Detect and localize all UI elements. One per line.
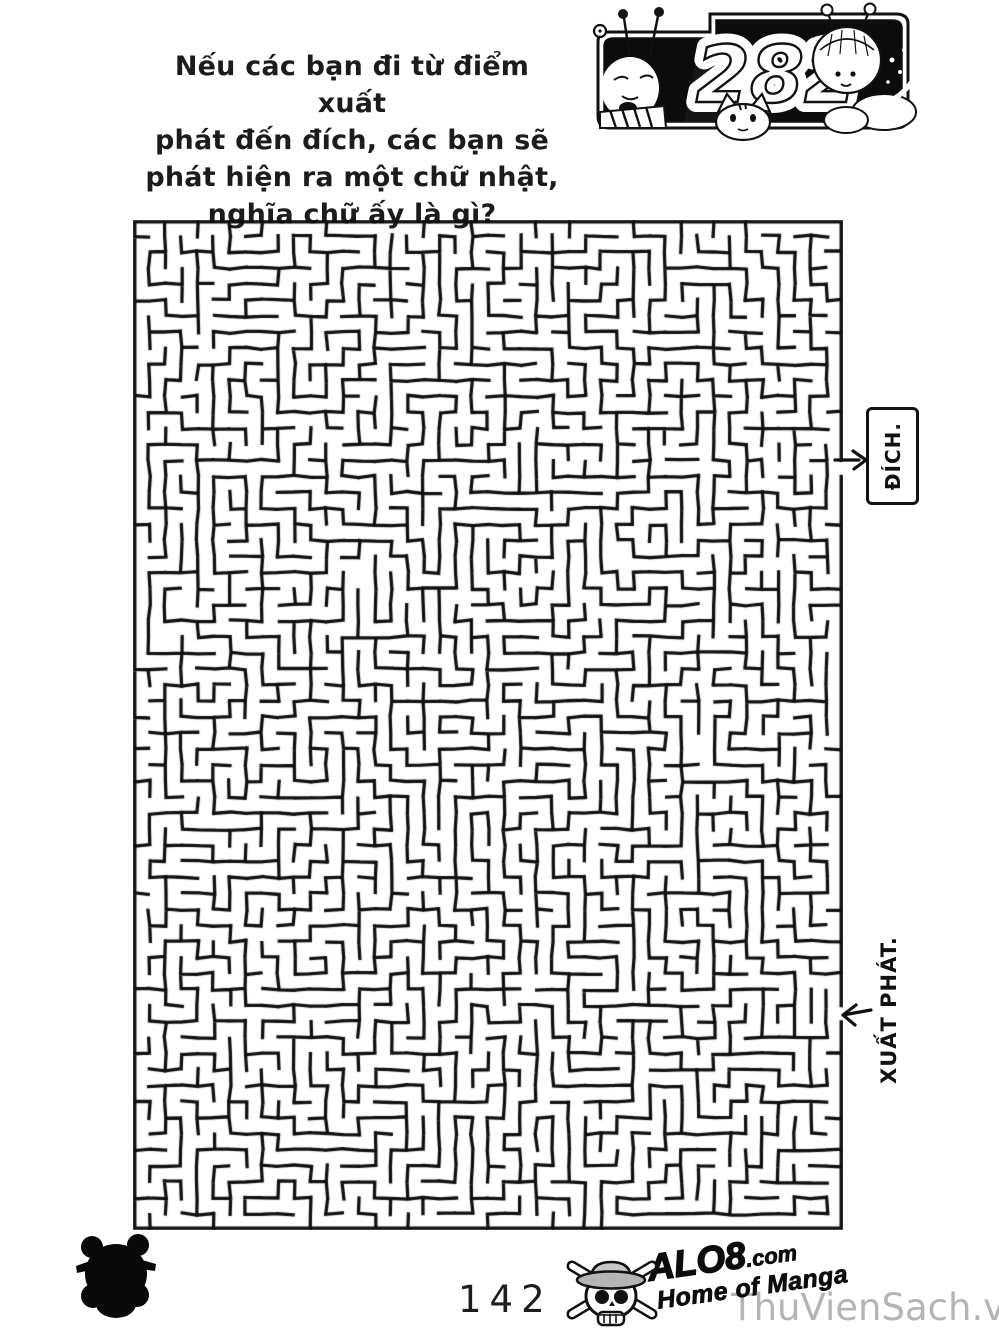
question-line: Nếu các bạn đi từ điểm xuất [140, 48, 564, 122]
maze [133, 220, 843, 1230]
goal-label-box: ĐÍCH. [866, 407, 919, 505]
question-text: Nếu các bạn đi từ điểm xuất phát đến đíc… [140, 48, 564, 233]
strawhat-skull-icon [552, 1248, 670, 1332]
question-line: phát đến đích, các bạn sẽ [140, 122, 564, 159]
chapter-header-panel: 282 282 [592, 0, 937, 142]
question-line: phát hiện ra một chữ nhật, [140, 159, 564, 196]
goal-label: ĐÍCH. [881, 422, 905, 490]
manga-puzzle-page: Nếu các bạn đi từ điểm xuất phát đến đíc… [0, 0, 999, 1332]
goal-arrow-icon [833, 447, 869, 473]
start-label: XUẤT PHÁT. [871, 933, 907, 1087]
skull-crossbones-icon [74, 1234, 158, 1322]
page-number: 142 [458, 1278, 553, 1321]
start-arrow-icon [839, 999, 875, 1029]
